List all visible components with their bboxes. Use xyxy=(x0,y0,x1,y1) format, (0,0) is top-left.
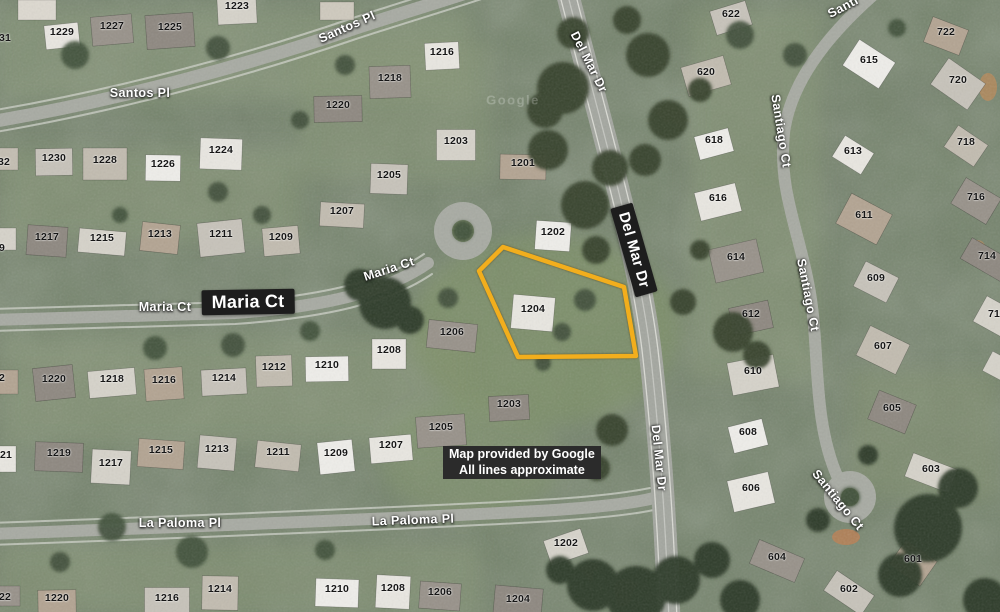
google-watermark: Google xyxy=(486,93,540,108)
map-attribution: Map provided by Google All lines approxi… xyxy=(443,446,601,479)
map-canvas[interactable]: 1229122712251223311230122812261224321217… xyxy=(0,0,1000,612)
attribution-line2: All lines approximate xyxy=(449,463,595,479)
attribution-line1: Map provided by Google xyxy=(449,447,595,463)
